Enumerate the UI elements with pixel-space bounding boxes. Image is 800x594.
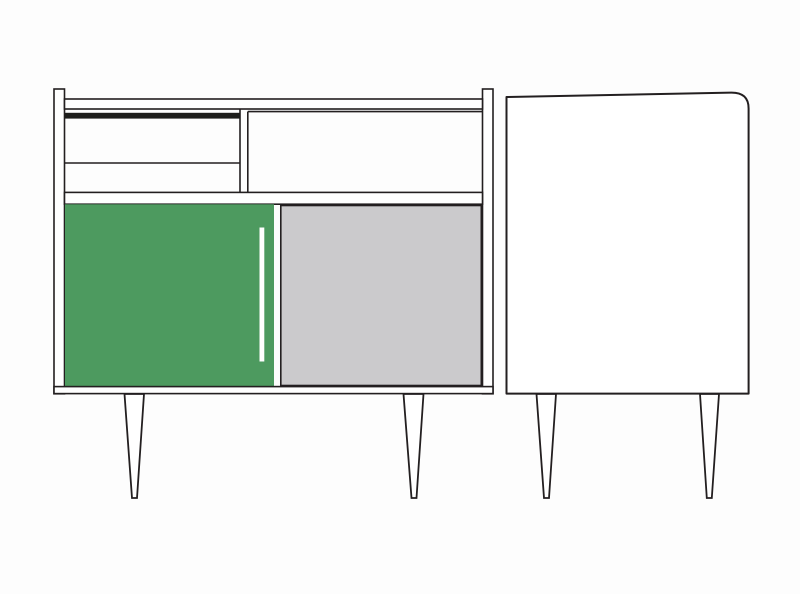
middle-shelf-panel (65, 192, 483, 204)
front-bottom-panel (54, 387, 493, 394)
sideboard-elevation-svg (0, 0, 800, 594)
door-handle-groove (260, 228, 265, 362)
drawer-grip-accent-bar (65, 113, 240, 119)
furniture-technical-drawing (0, 0, 800, 594)
sliding-door-gray (281, 206, 482, 386)
side-rear-leg (700, 394, 719, 498)
side-front-leg (537, 394, 557, 498)
front-left-leg (125, 394, 145, 498)
side-body-panel (507, 93, 749, 394)
front-right-leg (404, 394, 424, 498)
sliding-door-green (65, 204, 274, 386)
side-view (507, 93, 749, 498)
front-view (54, 89, 493, 498)
front-left-side-panel (54, 89, 65, 394)
front-right-side-panel (483, 89, 494, 394)
front-top-panel (65, 99, 483, 109)
